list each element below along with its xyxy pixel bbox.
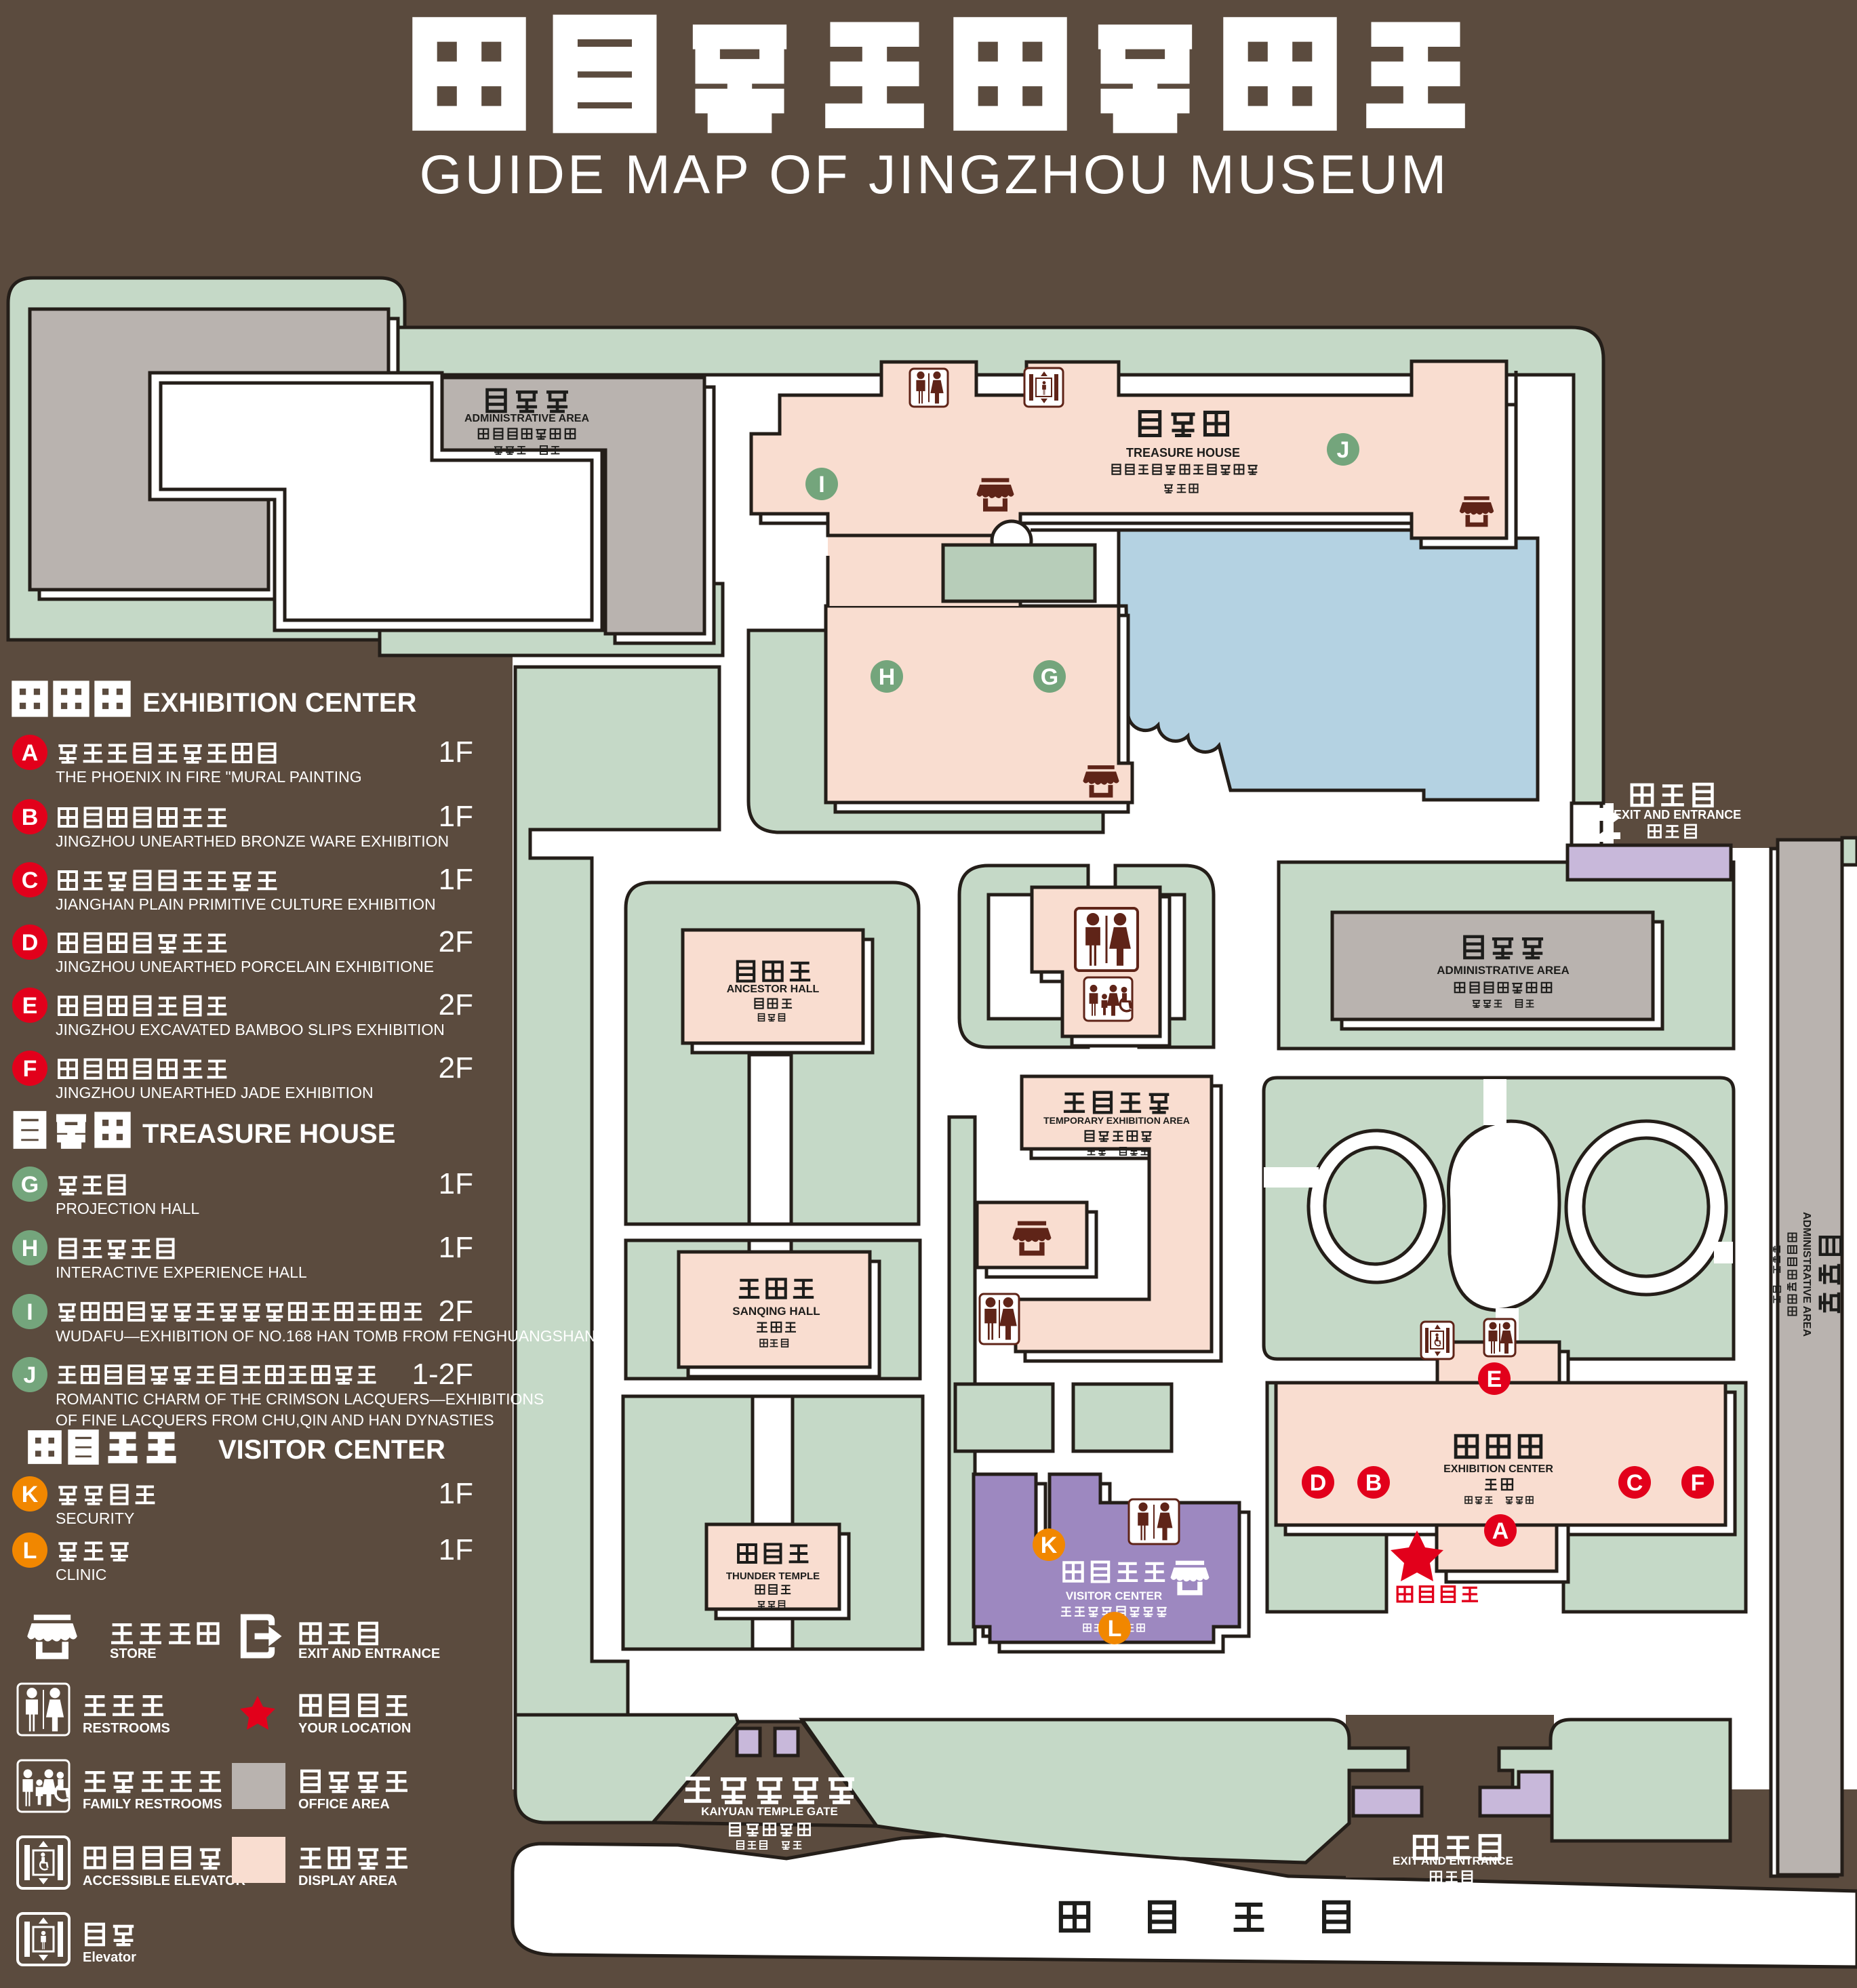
svg-text:OF FINE LACQUERS FROM CHU,QIN: OF FINE LACQUERS FROM CHU,QIN AND HAN DY… [56,1411,494,1429]
svg-text:F: F [23,1056,37,1082]
svg-text:G: G [1041,664,1058,690]
svg-text:L: L [1108,1616,1122,1642]
svg-text:TEMPORARY EXHIBITION AREA: TEMPORARY EXHIBITION AREA [1043,1115,1190,1126]
svg-text:D: D [1310,1470,1327,1496]
svg-text:B: B [22,805,39,830]
svg-text:VISITOR CENTER: VISITOR CENTER [1066,1589,1162,1602]
svg-text:YOUR LOCATION: YOUR LOCATION [298,1721,411,1736]
svg-text:D: D [22,930,39,956]
svg-text:E: E [1487,1366,1502,1392]
svg-text:2F: 2F [439,925,473,958]
svg-text:TREASURE HOUSE: TREASURE HOUSE [142,1119,395,1149]
svg-text:GUIDE MAP OF JINGZHOU MUSEUM: GUIDE MAP OF JINGZHOU MUSEUM [419,144,1449,205]
svg-text:J: J [1337,437,1350,463]
svg-text:I: I [818,472,824,498]
svg-text:2F: 2F [439,1051,473,1084]
svg-text:ANCESTOR HALL: ANCESTOR HALL [727,983,820,995]
svg-text:STORE: STORE [110,1646,157,1661]
svg-text:A: A [22,740,39,766]
svg-text:I: I [26,1299,33,1325]
svg-text:L: L [23,1538,37,1564]
svg-text:E: E [22,993,38,1019]
svg-text:2F: 2F [439,988,473,1021]
svg-text:ADMINISTRATIVE AREA: ADMINISTRATIVE AREA [464,413,589,424]
svg-text:KAIYUAN TEMPLE GATE: KAIYUAN TEMPLE GATE [701,1805,838,1818]
svg-text:JINGZHOU EXCAVATED BAMBOO SLIP: JINGZHOU EXCAVATED BAMBOO SLIPS EXHIBITI… [56,1021,445,1038]
svg-text:EXIT AND ENTRANCE: EXIT AND ENTRANCE [1393,1854,1513,1867]
svg-text:OFFICE AREA: OFFICE AREA [298,1797,390,1812]
svg-text:1F: 1F [439,1477,473,1510]
svg-text:EXIT AND ENTRANCE: EXIT AND ENTRANCE [298,1646,440,1661]
svg-text:JINGZHOU UNEARTHED JADE EXHIBI: JINGZHOU UNEARTHED JADE EXHIBITION [56,1084,374,1101]
svg-text:ACCESSIBLE ELEVATOR: ACCESSIBLE ELEVATOR [83,1873,246,1888]
svg-text:J: J [24,1362,37,1388]
svg-text:ADMINISTRATIVE AREA: ADMINISTRATIVE AREA [1437,964,1570,977]
svg-text:EXIT AND ENTRANCE: EXIT AND ENTRANCE [1614,808,1741,821]
svg-text:A: A [1492,1518,1509,1544]
svg-text:JINGZHOU UNEARTHED BRONZE WARE: JINGZHOU UNEARTHED BRONZE WARE EXHIBITIO… [56,832,449,850]
svg-text:1F: 1F [439,735,473,769]
svg-text:1-2F: 1-2F [412,1358,473,1391]
svg-text:F: F [1691,1470,1705,1496]
svg-text:H: H [879,664,896,690]
svg-text:FAMILY RESTROOMS: FAMILY RESTROOMS [83,1797,222,1812]
svg-text:K: K [1041,1533,1058,1558]
svg-text:THUNDER TEMPLE: THUNDER TEMPLE [726,1570,820,1582]
svg-text:TREASURE HOUSE: TREASURE HOUSE [1126,446,1240,460]
svg-text:SECURITY: SECURITY [56,1509,134,1527]
svg-text:2F: 2F [439,1295,473,1328]
svg-text:H: H [22,1236,39,1261]
svg-text:JIANGHAN PLAIN PRIMITIVE CULTU: JIANGHAN PLAIN PRIMITIVE CULTURE EXHIBIT… [56,895,436,913]
svg-text:SANQING HALL: SANQING HALL [732,1305,820,1318]
svg-text:WUDAFU—EXHIBITION OF NO.168 HA: WUDAFU—EXHIBITION OF NO.168 HAN TOMB FRO… [56,1327,596,1345]
svg-text:JINGZHOU UNEARTHED PORCELAIN E: JINGZHOU UNEARTHED PORCELAIN EXHIBITIONE [56,958,434,975]
svg-text:INTERACTIVE EXPERIENCE HALL: INTERACTIVE EXPERIENCE HALL [56,1263,307,1281]
svg-text:DISPLAY AREA: DISPLAY AREA [298,1873,397,1888]
svg-text:EXHIBITION CENTER: EXHIBITION CENTER [142,688,417,718]
svg-text:1F: 1F [439,1231,473,1264]
svg-text:1F: 1F [439,1533,473,1566]
svg-text:CLINIC: CLINIC [56,1566,106,1583]
svg-text:PROJECTION HALL: PROJECTION HALL [56,1200,199,1217]
svg-text:THE PHOENIX IN FIRE "MURAL PAI: THE PHOENIX IN FIRE "MURAL PAINTING [56,768,362,786]
svg-text:1F: 1F [439,863,473,896]
svg-text:G: G [21,1172,39,1198]
svg-text:Elevator: Elevator [83,1950,136,1965]
svg-text:RESTROOMS: RESTROOMS [83,1721,170,1736]
svg-text:C: C [22,868,39,893]
svg-text:EXHIBITION CENTER: EXHIBITION CENTER [1443,1463,1553,1475]
svg-text:C: C [1626,1470,1643,1496]
svg-text:1F: 1F [439,800,473,833]
svg-text:ADMINISTRATIVE AREA: ADMINISTRATIVE AREA [1801,1212,1812,1337]
svg-text:K: K [22,1482,39,1507]
svg-text:VISITOR CENTER: VISITOR CENTER [218,1435,445,1465]
svg-text:B: B [1365,1470,1382,1496]
svg-text:1F: 1F [439,1167,473,1200]
svg-text:ROMANTIC CHARM OF THE CRIMSON: ROMANTIC CHARM OF THE CRIMSON LACQUERS—E… [56,1390,544,1408]
